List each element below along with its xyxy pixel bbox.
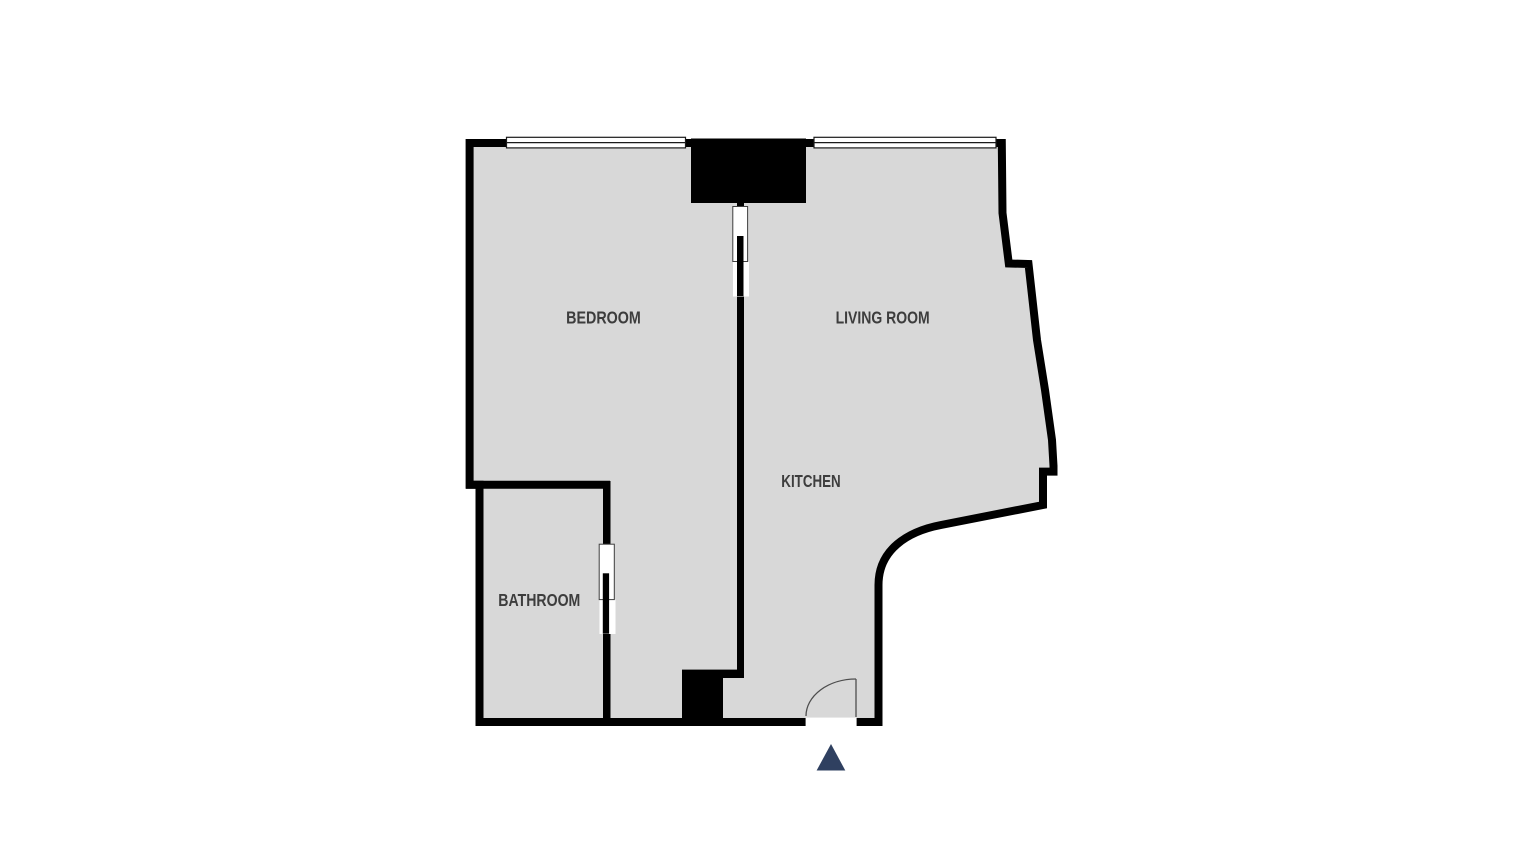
svg-text:BATHROOM: BATHROOM [498, 590, 580, 610]
svg-text:BEDROOM: BEDROOM [566, 308, 641, 328]
svg-text:KITCHEN: KITCHEN [781, 471, 840, 491]
svg-text:LIVING ROOM: LIVING ROOM [836, 308, 930, 328]
